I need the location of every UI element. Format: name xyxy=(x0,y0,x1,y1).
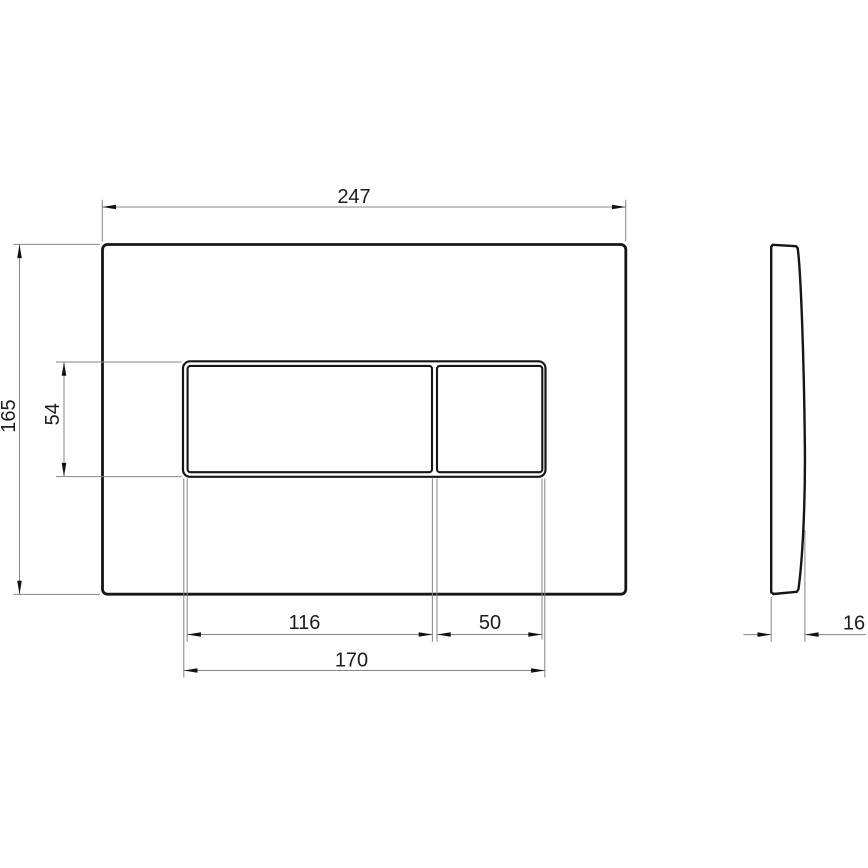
svg-text:170: 170 xyxy=(335,649,368,671)
svg-text:16: 16 xyxy=(843,613,865,635)
svg-text:50: 50 xyxy=(479,612,501,634)
svg-text:54: 54 xyxy=(42,403,64,425)
svg-text:165: 165 xyxy=(0,399,20,432)
svg-text:247: 247 xyxy=(337,186,370,208)
svg-text:116: 116 xyxy=(289,612,321,634)
